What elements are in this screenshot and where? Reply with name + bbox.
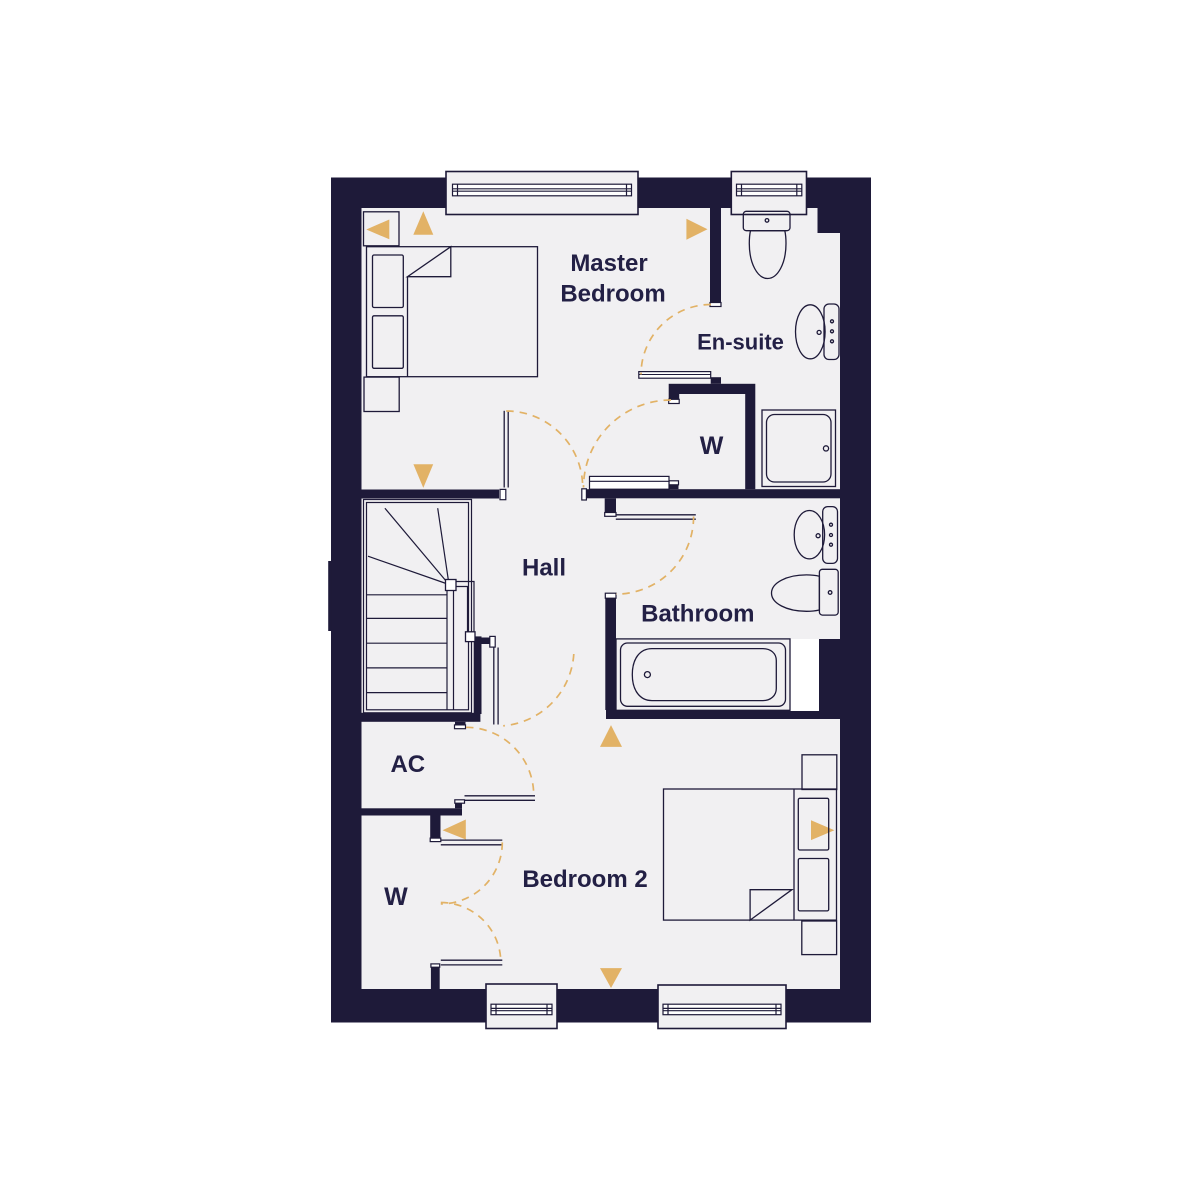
svg-text:Bedroom 2: Bedroom 2 bbox=[522, 866, 647, 893]
svg-text:AC: AC bbox=[390, 751, 425, 778]
svg-text:Bedroom: Bedroom bbox=[560, 281, 665, 308]
svg-text:En-suite: En-suite bbox=[697, 330, 784, 355]
svg-text:Hall: Hall bbox=[522, 555, 566, 582]
svg-text:Bathroom: Bathroom bbox=[641, 601, 754, 628]
svg-text:Master: Master bbox=[570, 250, 647, 277]
svg-text:W: W bbox=[700, 432, 724, 460]
svg-text:W: W bbox=[384, 883, 408, 911]
